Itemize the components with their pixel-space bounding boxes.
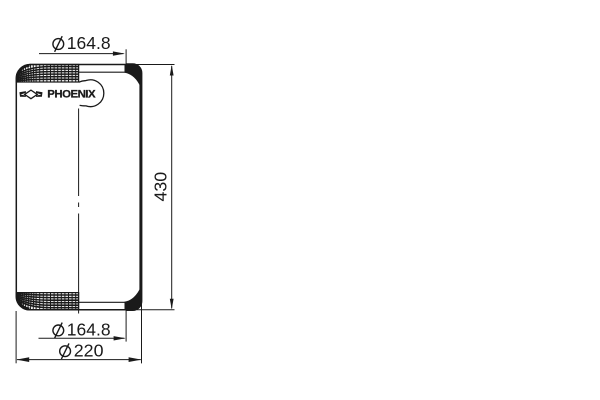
- svg-text:220: 220: [74, 340, 104, 360]
- svg-text:PHOENIX: PHOENIX: [47, 89, 96, 101]
- svg-text:164.8: 164.8: [67, 319, 111, 339]
- svg-text:430: 430: [150, 172, 170, 202]
- svg-text:164.8: 164.8: [67, 33, 111, 53]
